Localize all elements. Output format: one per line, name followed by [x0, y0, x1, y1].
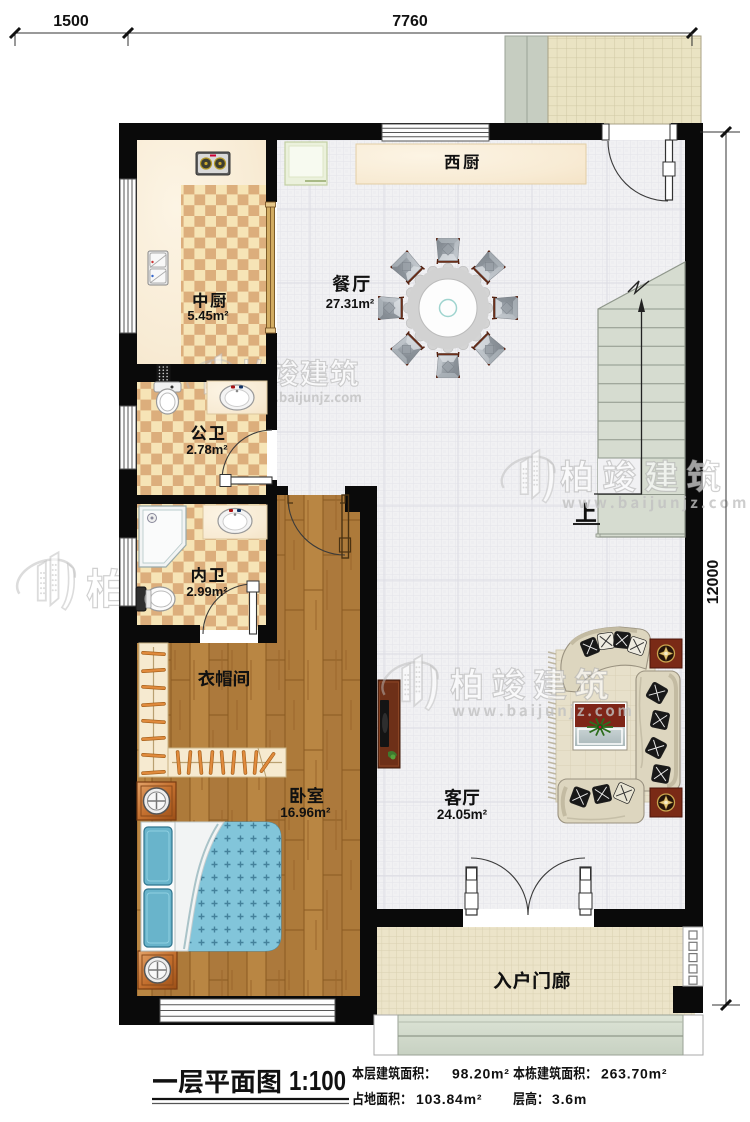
svg-text:263.70m²: 263.70m² — [601, 1066, 667, 1082]
svg-text:27.31m²: 27.31m² — [326, 296, 375, 311]
svg-text:3.6m: 3.6m — [552, 1091, 587, 1107]
svg-text:103.84m²: 103.84m² — [416, 1091, 482, 1107]
svg-text:16.96m²: 16.96m² — [280, 805, 331, 820]
svg-text:1:100: 1:100 — [289, 1065, 346, 1096]
svg-text:7760: 7760 — [392, 13, 428, 30]
svg-text:1500: 1500 — [53, 13, 89, 30]
svg-text:12000: 12000 — [705, 560, 722, 605]
svg-text:24.05m²: 24.05m² — [437, 807, 488, 822]
svg-text:2.78m²: 2.78m² — [186, 442, 228, 457]
svg-text:2.99m²: 2.99m² — [186, 584, 228, 599]
svg-text:5.45m²: 5.45m² — [187, 308, 229, 323]
svg-text:98.20m²: 98.20m² — [452, 1066, 510, 1082]
